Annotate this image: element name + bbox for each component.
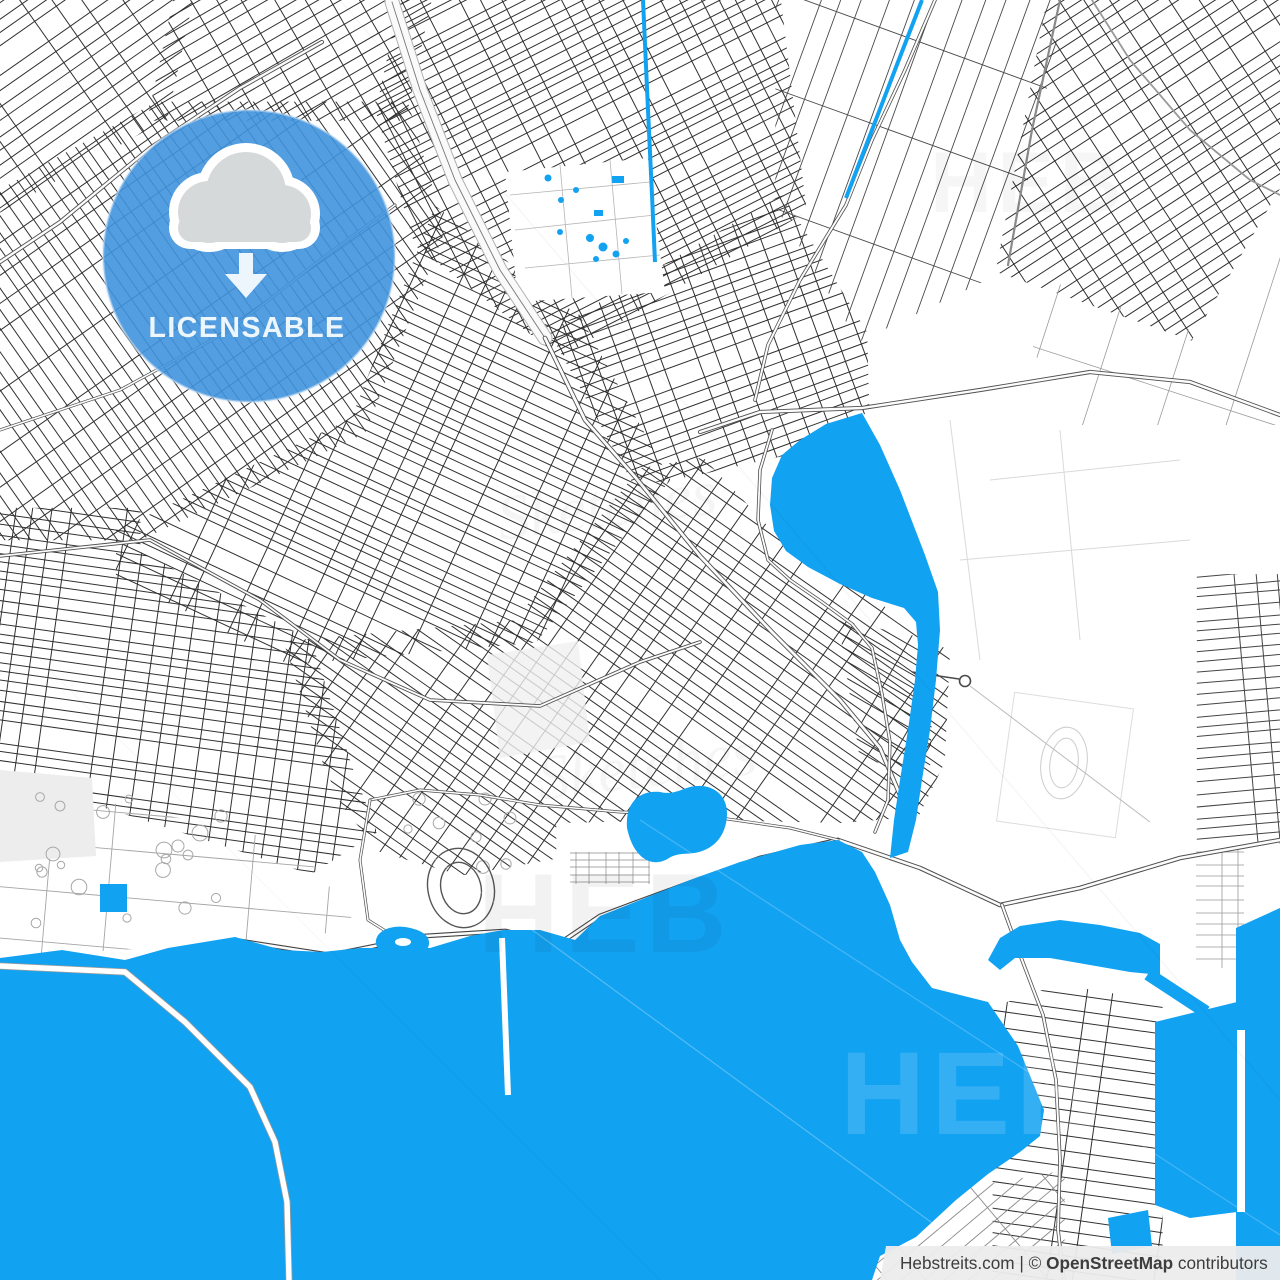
svg-text:LICENSABLE: LICENSABLE xyxy=(148,312,345,344)
svg-text:HEB: HEB xyxy=(930,135,1127,231)
svg-text:Hebstreits.com | © OpenStreetM: Hebstreits.com | © OpenStreetMap contrib… xyxy=(900,1253,1268,1273)
svg-text:HEB: HEB xyxy=(840,1028,1107,1160)
svg-text:HEB: HEB xyxy=(478,851,732,976)
